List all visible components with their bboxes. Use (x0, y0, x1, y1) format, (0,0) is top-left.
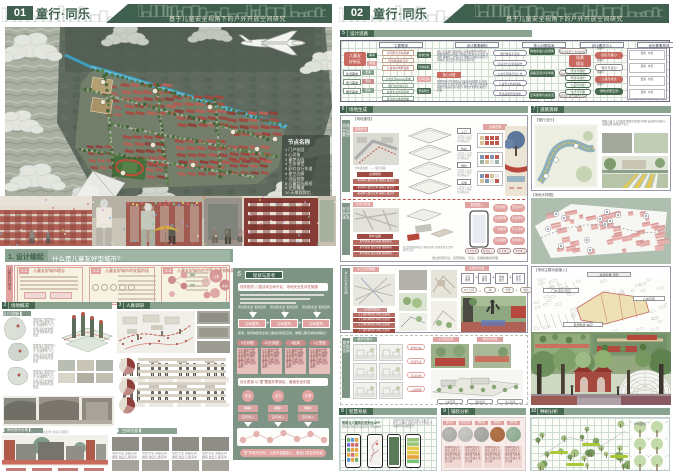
svg-text:友好: 友好 (222, 283, 228, 288)
svg-text:儿童: 儿童 (213, 274, 220, 279)
svg-text:乔木配置: 乔木配置 (634, 421, 646, 426)
svg-text:10 天景叙叙忆: 10 天景叙叙忆 (285, 189, 311, 195)
svg-text:节点名称: 节点名称 (288, 138, 311, 146)
